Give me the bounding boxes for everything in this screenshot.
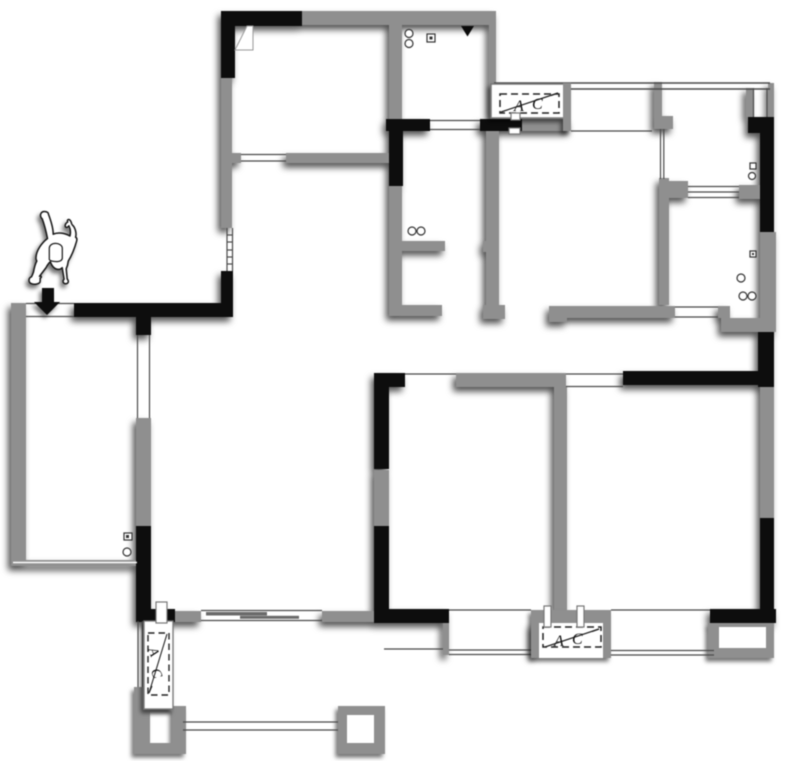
svg-text:A: A (553, 633, 564, 650)
svg-text:C: C (532, 96, 543, 113)
svg-text:C: C (572, 631, 583, 648)
